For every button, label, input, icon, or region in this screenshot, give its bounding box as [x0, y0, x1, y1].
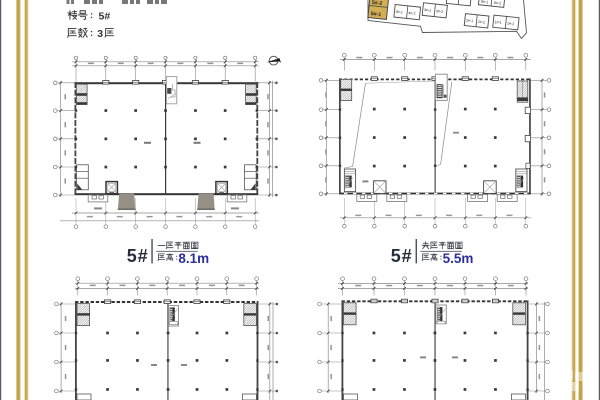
svg-text:5#-1: 5#-1 [370, 11, 381, 18]
svg-text:6#-2: 6#-2 [494, 1, 502, 6]
svg-text:2#-2: 2#-2 [478, 20, 486, 25]
svg-text:3#-1: 3#-1 [424, 8, 432, 13]
svg-text:1#-1: 1#-1 [494, 20, 502, 25]
svg-text:3: 3 [97, 28, 103, 40]
svg-text:4#-2: 4#-2 [408, 11, 416, 16]
svg-text:6#-1: 6#-1 [481, 0, 489, 4]
svg-text:5#-2: 5#-2 [372, 0, 383, 7]
svg-text:4#-1: 4#-1 [395, 10, 403, 15]
svg-text:5.5m: 5.5m [443, 251, 474, 266]
svg-text:8.1m: 8.1m [178, 251, 209, 266]
svg-text:5#: 5# [99, 10, 111, 22]
svg-text:5#: 5# [127, 246, 149, 266]
svg-text:3#-2: 3#-2 [436, 9, 444, 14]
svg-text:1#-2: 1#-2 [507, 21, 515, 26]
svg-text:5#: 5# [391, 246, 413, 266]
svg-text:2#-1: 2#-1 [466, 18, 474, 23]
